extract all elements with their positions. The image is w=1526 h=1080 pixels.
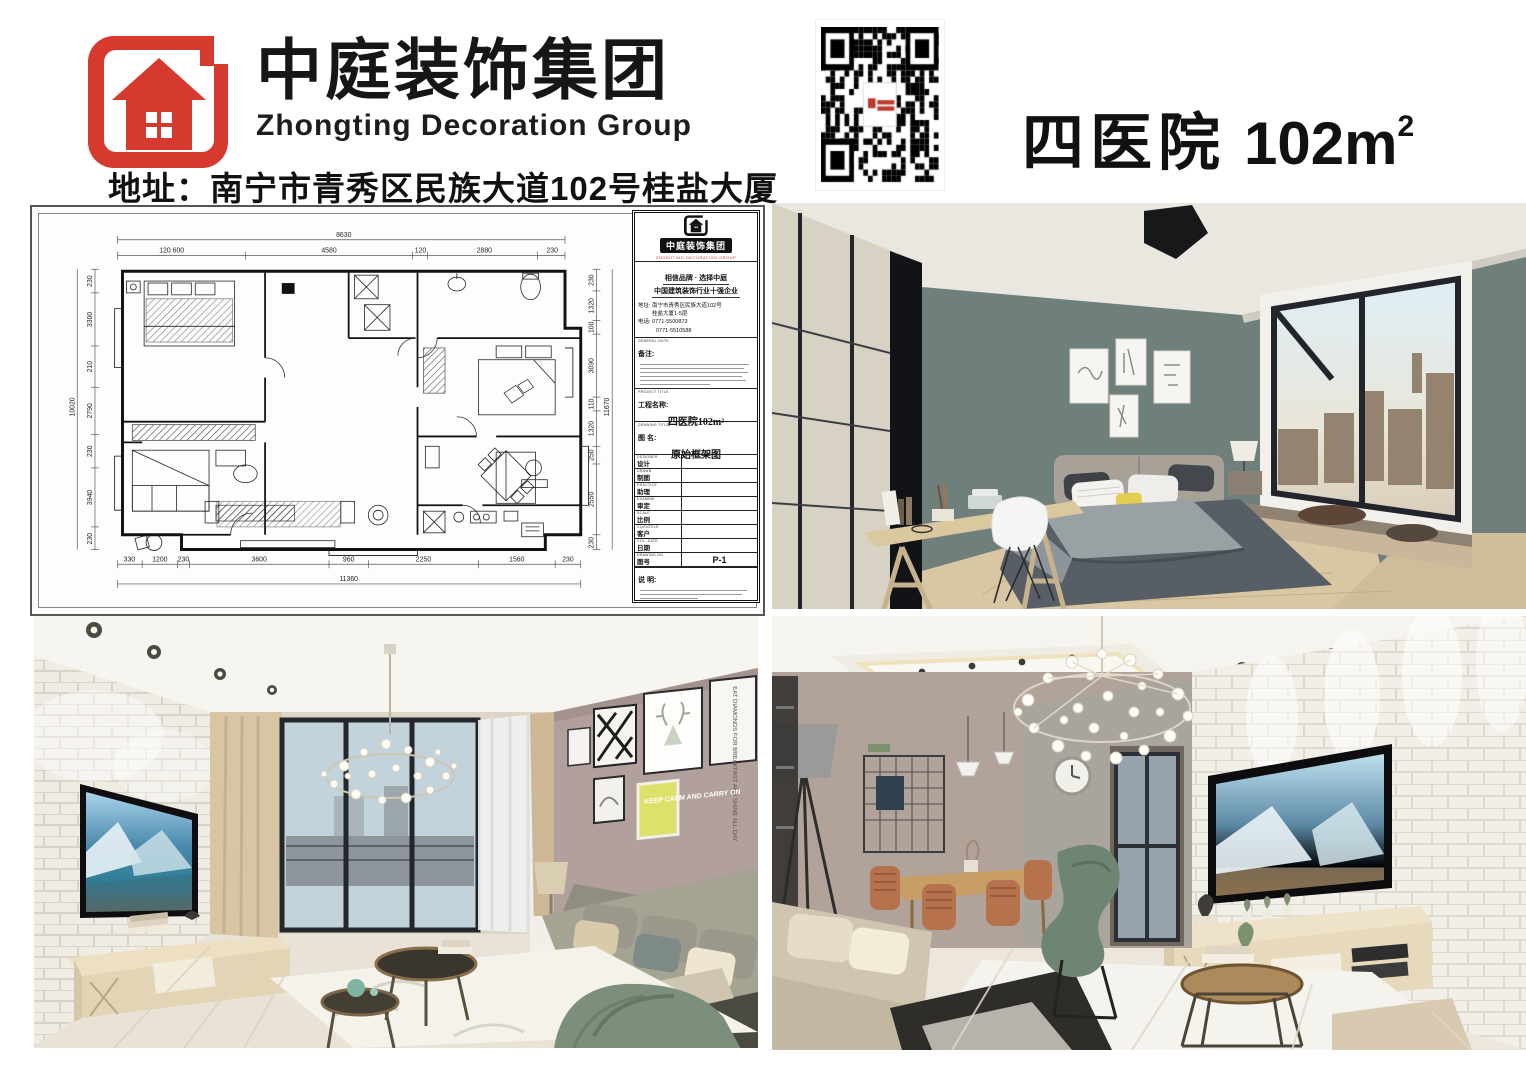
svg-text:230: 230 — [589, 537, 596, 549]
svg-text:100: 100 — [589, 321, 596, 333]
address-line: 地址：南宁市青秀区民族大道102号桂盐大厦 — [108, 162, 778, 210]
flyer-page: 中庭装饰集团 Zhongting Decoration Group 地址：南宁市… — [0, 0, 1526, 1080]
svg-text:120: 120 — [415, 248, 427, 255]
bay-window — [1242, 261, 1472, 569]
brand-name-cn: 中庭装饰集团 — [256, 36, 726, 105]
svg-text:250: 250 — [589, 449, 596, 461]
svg-text:8630: 8630 — [336, 232, 351, 239]
titleblock-remark: 说 明: — [635, 567, 757, 600]
titleblock-note: GENERAL NOTE 备注: — [635, 338, 757, 389]
svg-text:210: 210 — [87, 361, 94, 373]
svg-text:10020: 10020 — [69, 397, 76, 416]
house-logo-icon — [84, 28, 234, 178]
titleblock-project-title: PROJECT TITLE 工程名称: 四医院102m² — [635, 389, 757, 422]
row-date: COL. DATE日期 — [635, 539, 757, 553]
titleblock-signoff-rows: DESIGNER设计 DRAWN制图 PRACTICE助理 EXAMINE审定 … — [635, 455, 757, 567]
svg-text:960: 960 — [343, 556, 355, 563]
house-glyph — [112, 58, 206, 150]
pillow-gray — [632, 933, 683, 974]
project-area: 102m2 — [1244, 110, 1414, 177]
note-label-cn: 备注: — [638, 351, 654, 358]
house-logo-icon-small — [683, 214, 709, 236]
svg-text:1320: 1320 — [589, 421, 596, 436]
row-drawn: DRAWN制图 — [635, 469, 757, 483]
art-quote-text: EAT DIAMONDS FOR BREAKFAST AND SHINE ALL… — [731, 686, 737, 842]
svg-text:110: 110 — [589, 398, 596, 409]
svg-text:3300: 3300 — [87, 312, 94, 327]
bedroom-photo — [772, 203, 1526, 609]
plan-appliance-box — [282, 283, 295, 294]
svg-text:3940: 3940 — [87, 490, 94, 505]
drawing-number: P-1 — [682, 553, 757, 566]
titleblock: 中庭装饰集团 ZHONGTING DECORATION GROUP 相信品牌 ·… — [632, 210, 760, 603]
svg-text:1320: 1320 — [589, 298, 596, 313]
yellow-print — [638, 780, 678, 838]
row-drawing-no: DRAWING NO图号 P-1 — [635, 553, 757, 566]
tb-phone-1: 电话: 0771-5500873 — [638, 318, 754, 326]
row-scale: SCALE比例 — [635, 511, 757, 525]
svg-text:230: 230 — [178, 556, 190, 563]
svg-text:1200: 1200 — [152, 556, 167, 563]
svg-text:230: 230 — [87, 445, 94, 457]
glass-partition — [1116, 754, 1178, 940]
project-name: 四医院 — [1022, 110, 1226, 178]
svg-text:2880: 2880 — [477, 248, 492, 255]
tb-address-2: 桂盐大厦1-5层 — [638, 310, 754, 318]
svg-text:3600: 3600 — [252, 556, 267, 563]
svg-text:230: 230 — [562, 556, 574, 563]
books — [1202, 954, 1254, 963]
zhongting-logo — [84, 28, 234, 178]
svg-text:4580: 4580 — [321, 248, 336, 255]
titleblock-drawing-title: DRAWING TITLE 图 名: 原始框架图 — [635, 422, 757, 455]
pillow-beige — [786, 913, 854, 963]
note-label-en: GENERAL NOTE — [638, 339, 754, 343]
titleblock-slogans: 相信品牌 · 选择中庭 中国建筑装饰行业十强企业 — [635, 262, 757, 300]
row-designer: DESIGNER设计 — [635, 455, 757, 469]
svg-text:120 600: 120 600 — [159, 248, 184, 255]
svg-text:2550: 2550 — [589, 492, 596, 507]
curtain-left — [210, 712, 282, 938]
teal-teapot — [347, 979, 365, 997]
titleblock-logo: 中庭装饰集团 ZHONGTING DECORATION GROUP — [635, 213, 757, 262]
titleblock-brand-en: ZHONGTING DECORATION GROUP — [656, 255, 736, 260]
slogan-1: 相信品牌 · 选择中庭 — [663, 273, 729, 285]
svg-text:3090: 3090 — [589, 358, 596, 373]
svg-text:2790: 2790 — [87, 403, 94, 418]
row-practice: PRACTICE助理 — [635, 483, 757, 497]
svg-text:1560: 1560 — [509, 556, 524, 563]
row-clientele: CLIENTELE客户 — [635, 525, 757, 539]
brand-name-en: Zhongting Decoration Group — [256, 109, 726, 143]
wechat-qr-code — [816, 20, 944, 190]
floorplan-sheet: 8630 120 600 4580 120 2880 230 330 1200 … — [30, 205, 765, 616]
qr-pattern — [821, 27, 939, 183]
project-title: 四医院102m2 — [1022, 92, 1414, 182]
svg-text:230: 230 — [87, 533, 94, 545]
furniture — [126, 273, 555, 550]
tb-address-1: 地址: 南宁市青秀区民族大道102号 — [638, 302, 754, 310]
svg-text:230: 230 — [87, 275, 94, 287]
slogan-2: 中国建筑装饰行业十强企业 — [652, 285, 740, 298]
svg-text:230: 230 — [589, 274, 596, 286]
pillow-cream — [847, 926, 910, 976]
svg-text:11670: 11670 — [604, 397, 611, 416]
titleblock-contact: 地址: 南宁市青秀区民族大道102号 桂盐大厦1-5层 电话: 0771-550… — [635, 300, 757, 338]
svg-text:11360: 11360 — [339, 576, 358, 583]
dimension-labels: 8630 120 600 4580 120 2880 230 330 1200 … — [69, 232, 611, 583]
floorplan-drawing: 8630 120 600 4580 120 2880 230 330 1200 … — [34, 207, 624, 600]
brand-block: 中庭装饰集团 Zhongting Decoration Group — [256, 36, 726, 143]
svg-text:2250: 2250 — [416, 556, 431, 563]
tb-phone-2: 0771-5510588 — [638, 327, 754, 335]
svg-text:330: 330 — [124, 556, 136, 563]
row-examine: EXAMINE审定 — [635, 497, 757, 511]
living-room-photo-1: EAT DIAMONDS FOR BREAKFAST AND SHINE ALL… — [34, 616, 758, 1048]
living-room-photo-2 — [772, 616, 1526, 1050]
titleblock-brand-cn: 中庭装饰集团 — [660, 238, 732, 253]
metal-shelf — [772, 676, 798, 916]
svg-text:230: 230 — [546, 248, 558, 255]
